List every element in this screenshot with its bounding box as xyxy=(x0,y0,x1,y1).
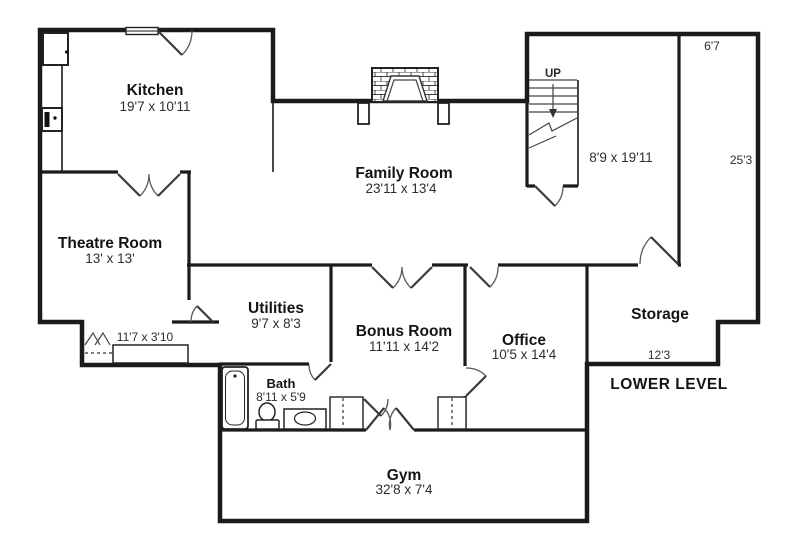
staircase xyxy=(529,80,577,148)
bathtub-drain xyxy=(233,374,236,377)
label-dim-closet: 11'7 x 3'10 xyxy=(117,330,174,344)
label-kitchen-dims: 19'7 x 10'11 xyxy=(120,99,191,114)
label-theatre-room-dims: 13' x 13' xyxy=(85,251,134,266)
label-bath-name: Bath xyxy=(267,376,296,391)
label-dim-storage-top: 6'7 xyxy=(704,39,720,53)
toilet-tank xyxy=(256,420,279,429)
label-utilities-name: Utilities xyxy=(248,300,304,317)
label-bonus-room-dims: 11'11 x 14'2 xyxy=(369,339,439,354)
kitchen-fixtures xyxy=(42,33,68,131)
label-storage-name: Storage xyxy=(631,306,689,323)
label-utilities-dims: 9'7 x 8'3 xyxy=(251,316,300,331)
fireplace-pier-left xyxy=(358,103,369,124)
label-office-dims: 10'5 x 14'4 xyxy=(492,347,557,362)
label-kitchen-name: Kitchen xyxy=(127,82,184,99)
stair-break-line xyxy=(529,118,577,148)
label-dim-storage-bottom: 12'3 xyxy=(648,348,671,362)
vanity-sink-icon xyxy=(295,412,316,425)
label-stairs-up: UP xyxy=(545,68,561,80)
bathtub-inner xyxy=(226,371,245,425)
label-family-room-name: Family Room xyxy=(355,165,452,182)
closet-shelf xyxy=(113,345,188,363)
fireplace-pier-right xyxy=(438,103,449,124)
hanger-icon xyxy=(85,333,110,345)
floor-plan: Kitchen 19'7 x 10'11 Family Room 23'11 x… xyxy=(0,0,800,555)
floor-plan-drawing: Kitchen 19'7 x 10'11 Family Room 23'11 x… xyxy=(0,0,800,555)
refrigerator-icon xyxy=(43,33,68,65)
label-gym-dims: 32'8 x 7'4 xyxy=(376,482,433,497)
label-family-room-dims: 23'11 x 13'4 xyxy=(366,181,437,196)
label-bath-dims: 8'11 x 5'9 xyxy=(256,390,306,404)
toilet-icon xyxy=(259,403,275,421)
kitchen-window xyxy=(126,28,158,35)
refrigerator-handle xyxy=(65,50,68,53)
label-dim-storage-right: 25'3 xyxy=(730,153,753,167)
label-theatre-room-name: Theatre Room xyxy=(58,235,162,252)
labels: Kitchen 19'7 x 10'11 Family Room 23'11 x… xyxy=(58,39,753,497)
label-bonus-room-name: Bonus Room xyxy=(356,323,452,340)
fireplace xyxy=(358,68,449,124)
label-lower-level: LOWER LEVEL xyxy=(610,376,727,393)
sink-basin xyxy=(45,112,50,127)
sink-faucet-dot xyxy=(53,116,56,119)
label-stair-hall-dims: 8'9 x 19'11 xyxy=(589,150,652,165)
stair-arrowhead xyxy=(549,109,557,118)
bonus-closet-left xyxy=(330,397,363,429)
